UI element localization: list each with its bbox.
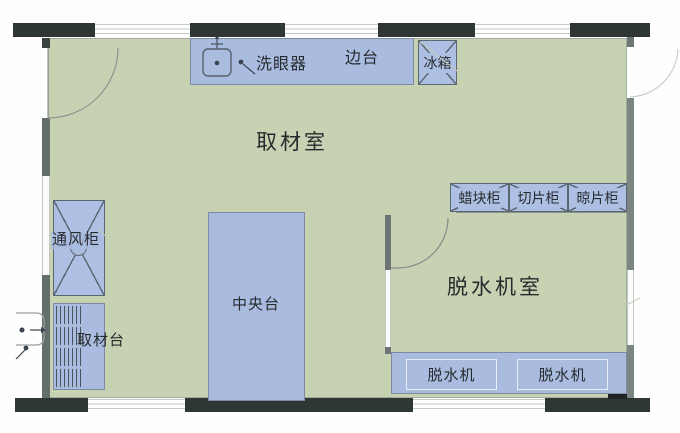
slide-drying-cabinet-label: 晾片柜 — [576, 188, 620, 208]
sampling-bench-label: 取材台 — [77, 334, 125, 349]
wall-segment — [42, 38, 50, 48]
partition-pass-window — [385, 270, 391, 347]
left-window — [42, 176, 50, 275]
floor-plan: 洗眼器 边台 冰箱 蜡块柜 切片柜 晾片柜 通风柜 取材台 中央台 脱水机 脱水… — [0, 0, 680, 433]
wall-segment — [15, 398, 88, 412]
bottom-window-glazing — [88, 399, 185, 411]
top-window-glazing — [13, 24, 650, 37]
wall-segment — [627, 37, 634, 47]
eye-wash-label: 洗眼器 — [256, 57, 307, 73]
wall-segment — [545, 398, 650, 412]
dehydrator-2-label: 脱水机 — [538, 364, 586, 385]
wax-block-cabinet-label: 蜡块柜 — [458, 188, 502, 208]
section-cabinet: 切片柜 — [509, 183, 568, 212]
fridge-label: 冰箱 — [423, 53, 453, 73]
dehydration-room-label: 脱水机室 — [447, 277, 543, 298]
dehydrator-1-label: 脱水机 — [427, 364, 475, 385]
wall-segment — [42, 275, 50, 398]
wall-segment — [42, 118, 50, 176]
dehydrator-2: 脱水机 — [517, 359, 608, 390]
wall-segment — [627, 345, 634, 398]
wall-pillar — [378, 23, 475, 37]
wall-pillar — [190, 23, 285, 37]
central-bench-label: 中央台 — [232, 298, 280, 313]
wax-block-cabinet: 蜡块柜 — [450, 183, 509, 212]
dehydrator-1: 脱水机 — [406, 359, 497, 390]
floor-area — [48, 38, 627, 398]
fridge: 冰箱 — [418, 40, 457, 85]
slide-drying-cabinet: 晾片柜 — [568, 183, 627, 212]
wall-pillar — [13, 23, 95, 37]
wall-pillar — [570, 23, 650, 37]
sampling-room-label: 取材室 — [256, 132, 328, 153]
fume-hood-label: 通风柜 — [51, 232, 101, 249]
wall-segment — [627, 98, 634, 270]
side-bench-label: 边台 — [345, 51, 379, 67]
bottom-window-glazing — [413, 399, 545, 411]
door-swing-arc — [630, 49, 678, 97]
section-cabinet-label: 切片柜 — [517, 188, 561, 208]
right-window — [627, 270, 634, 345]
partition-wall — [385, 215, 391, 270]
